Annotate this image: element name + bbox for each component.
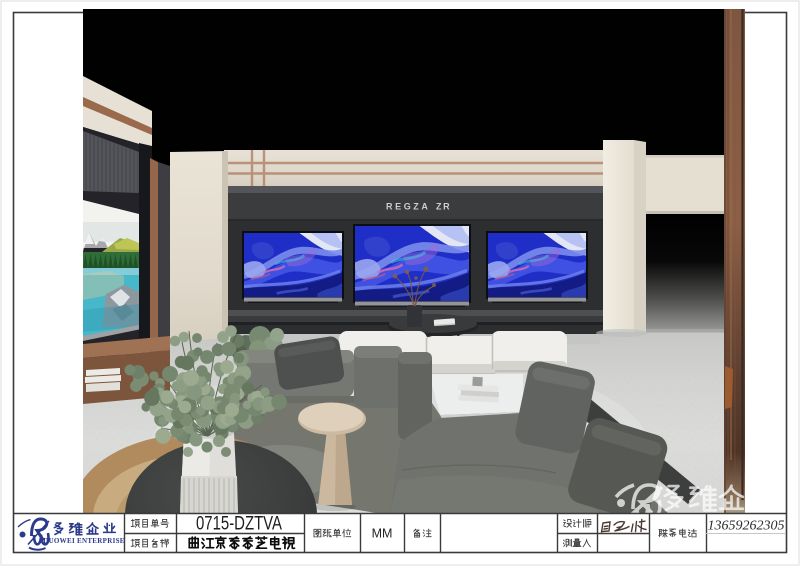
svg-text:13659262305: 13659262305 — [708, 519, 785, 534]
svg-text:0715-DZTVA: 0715-DZTVA — [196, 513, 282, 535]
svg-text:MM: MM — [372, 527, 393, 541]
svg-text:REGZA: REGZA — [386, 202, 431, 212]
svg-text:ZR: ZR — [436, 202, 451, 212]
svg-text:DUOWEI ENTERPRISE: DUOWEI ENTERPRISE — [43, 537, 125, 545]
